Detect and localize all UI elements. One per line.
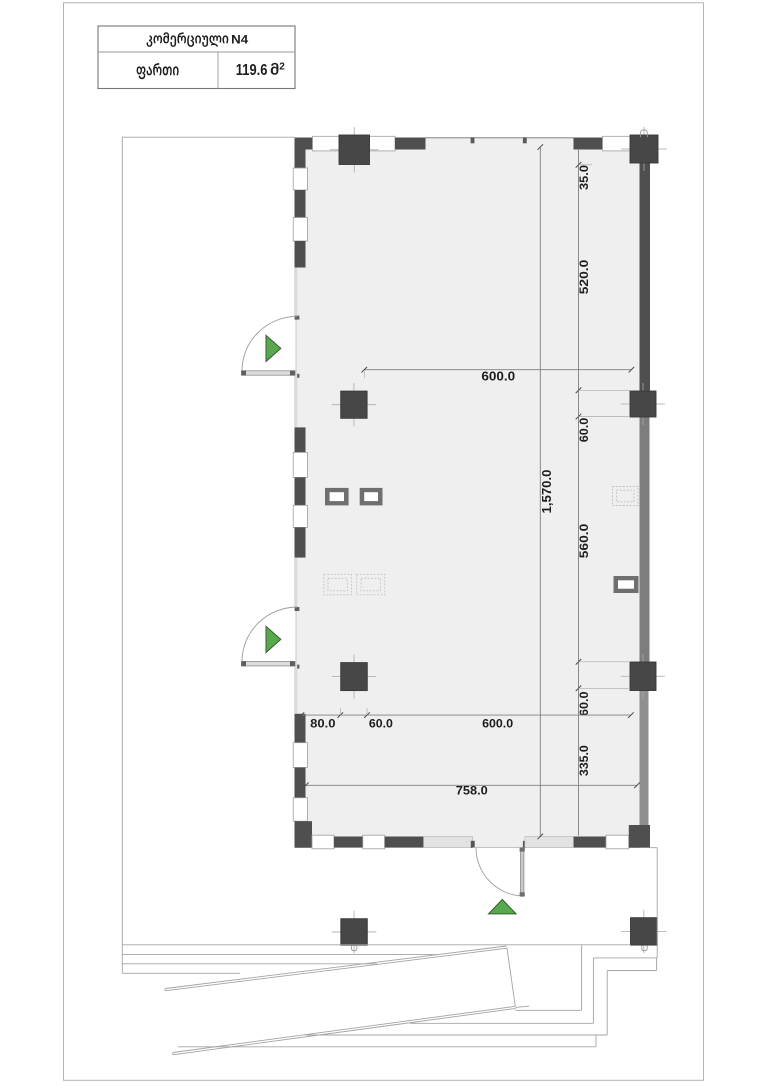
svg-text:1,570.0: 1,570.0 xyxy=(540,469,554,513)
svg-text:119.6: 119.6 xyxy=(236,62,268,79)
svg-text:N4: N4 xyxy=(231,32,248,46)
svg-text:600.0: 600.0 xyxy=(481,369,515,383)
svg-text:60.0: 60.0 xyxy=(369,716,393,730)
svg-text:80.0: 80.0 xyxy=(310,716,336,730)
svg-text:520.0: 520.0 xyxy=(577,260,591,295)
svg-text:2: 2 xyxy=(279,61,285,72)
svg-text:600.0: 600.0 xyxy=(482,716,513,730)
svg-text:60.0: 60.0 xyxy=(577,418,591,443)
svg-text:758.0: 758.0 xyxy=(456,783,488,797)
svg-text:335.0: 335.0 xyxy=(577,745,591,776)
svg-text:560.0: 560.0 xyxy=(577,524,591,559)
svg-text:35.0: 35.0 xyxy=(577,165,591,190)
svg-text:60.0: 60.0 xyxy=(577,691,591,716)
